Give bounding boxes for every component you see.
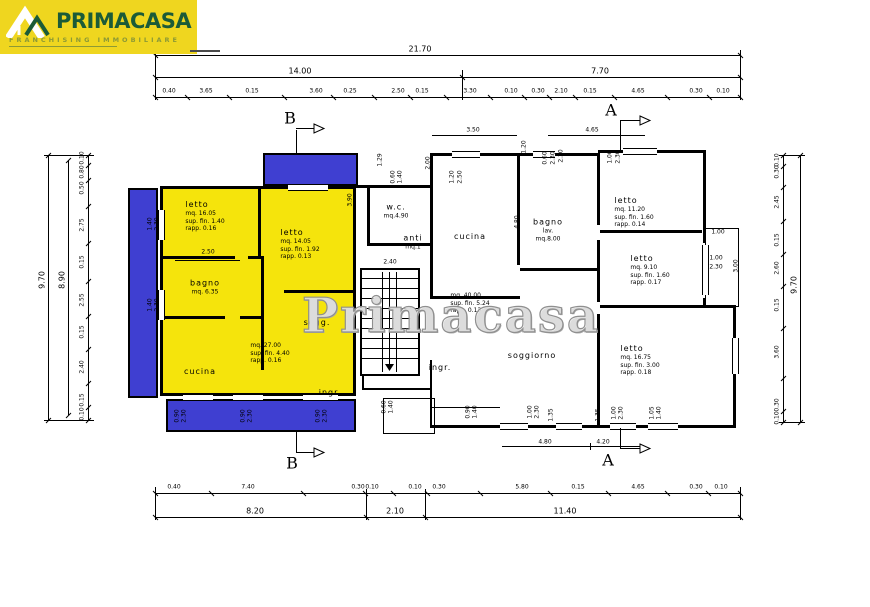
wall xyxy=(430,153,433,299)
dim-label: 1.29 xyxy=(377,153,384,166)
dim-label: 0.90 xyxy=(174,409,181,422)
section-line-a xyxy=(620,448,640,449)
dim-bottom-groups-label: 8.20 xyxy=(246,507,264,516)
dim-left-details-label: 0.10 xyxy=(79,151,86,164)
dim-label: 2.00 xyxy=(425,156,432,169)
window xyxy=(732,338,739,374)
dim-label: 4.65 xyxy=(585,127,598,134)
room-ingr-left-line-0: ingr. xyxy=(319,388,341,398)
dim-left-details-line xyxy=(88,155,89,420)
dim-right-details-label: 2.60 xyxy=(774,261,781,274)
room-letto-2: lettomq. 14.05sup. fin. 1.92rapp. 0.13 xyxy=(280,228,319,261)
dim-label: 4.80 xyxy=(538,439,551,446)
room-letto-r3-line-0: letto xyxy=(620,344,659,354)
dim-right-details-label: 0.15 xyxy=(774,233,781,246)
inline-dim-line xyxy=(432,135,517,136)
dim-label: 0.60 xyxy=(381,400,388,413)
inline-dim-line xyxy=(548,135,645,136)
dim-left-details-label: 0.80 xyxy=(79,165,86,178)
dim-label: 2.30 xyxy=(154,217,161,230)
room-wc-line-1: mq.4.90 xyxy=(384,212,409,220)
section-arrow-b-bottom xyxy=(313,447,326,458)
wall xyxy=(248,256,261,259)
dim-label: 2.30 xyxy=(181,409,188,422)
dim-bottom-details-label: 7.40 xyxy=(241,484,254,491)
section-line-b xyxy=(296,130,297,153)
dim-left-inner-label: 8.90 xyxy=(58,271,67,289)
stair-wall xyxy=(360,268,420,270)
dim-left-overall-label: 9.70 xyxy=(38,271,47,289)
dim-label: 0.60 xyxy=(542,151,549,164)
dim-right-details-label: 0.15 xyxy=(774,298,781,311)
room-letto-2-line-2: sup. fin. 1.92 xyxy=(280,245,319,253)
room-cucina-center: cucina xyxy=(454,232,486,242)
dim-label: 2.30 xyxy=(709,264,722,271)
dim-label: 4.20 xyxy=(596,439,609,446)
dim-top-details-label: 4.65 xyxy=(631,88,644,95)
logo-rule xyxy=(9,46,117,47)
dim-label: 1.20 xyxy=(449,170,456,183)
room-letto-r1-line-0: letto xyxy=(614,196,653,206)
window xyxy=(500,423,528,430)
section-line-b xyxy=(296,128,314,129)
room-letto-1-line-2: sup. fin. 1.40 xyxy=(185,217,224,225)
house-icon xyxy=(6,4,56,38)
balcony-top xyxy=(263,153,358,186)
section-letter-a-bottom: A xyxy=(602,451,614,470)
room-letto-1-line-3: rapp. 0.16 xyxy=(185,225,224,233)
dim-label: 3.50 xyxy=(466,127,479,134)
window xyxy=(556,423,582,430)
stair-tread xyxy=(362,358,418,359)
primacasa-logo: PRIMACASA FRANCHISING IMMOBILIARE xyxy=(0,0,197,54)
wall xyxy=(362,376,364,388)
room-letto-r2-line-1: mq. 9.10 xyxy=(630,264,669,272)
dim-label: 2.30 xyxy=(618,406,625,419)
dim-left-details-label: 2.55 xyxy=(79,293,86,306)
window xyxy=(233,394,263,401)
dim-label: 1.40 xyxy=(147,217,154,230)
dim-left-overall-line xyxy=(48,155,49,420)
dim-top-groups-label: 7.70 xyxy=(591,67,609,76)
room-soggiorno-line-0: soggiorno xyxy=(508,351,556,361)
wall xyxy=(517,156,520,265)
window xyxy=(183,394,213,401)
wall xyxy=(261,256,264,319)
room-letto-2-line-3: rapp. 0.13 xyxy=(280,253,319,261)
dim-label: 1.35 xyxy=(548,408,555,421)
room-letto-1-line-0: letto xyxy=(185,200,224,210)
wall xyxy=(520,268,600,271)
dim-bottom-details-label: 5.80 xyxy=(515,484,528,491)
dim-right-details-label: 0.10 xyxy=(774,411,781,424)
dim-left-details-label: 2.75 xyxy=(79,218,86,231)
dim-right-details-label: 2.45 xyxy=(774,195,781,208)
wall xyxy=(703,150,706,243)
dim-top-overall-line xyxy=(155,55,740,56)
window xyxy=(452,151,480,158)
room-letto-r3-line-2: sup. fin. 3.00 xyxy=(620,361,659,369)
section-arrow-a-top xyxy=(639,115,652,126)
dim-bottom-details-label: 0.10 xyxy=(714,484,727,491)
room-letto-r3-line-3: rapp. 0.18 xyxy=(620,369,659,377)
left-apartment-stats-line-0: mq. 27.00 xyxy=(250,342,289,350)
dim-top-details-label: 0.30 xyxy=(689,88,702,95)
inline-dim-line xyxy=(175,260,240,261)
room-bagno-lav-line-1: lav. xyxy=(533,228,563,236)
dim-label: 0.90 xyxy=(240,409,247,422)
stair-tread xyxy=(362,278,418,279)
wall xyxy=(600,230,702,233)
room-letto-r2-line-2: sup. fin. 1.60 xyxy=(630,271,669,279)
room-soggiorno: soggiorno xyxy=(508,351,556,361)
dim-label: 1.05 xyxy=(649,406,656,419)
section-line-a xyxy=(620,120,621,153)
dim-label: 2.30 xyxy=(322,409,329,422)
dim-label: 2.40 xyxy=(383,259,396,266)
wall xyxy=(163,316,225,319)
section-line-a xyxy=(620,428,621,448)
logo-brand-text: PRIMACASA xyxy=(56,9,191,33)
wall xyxy=(367,185,370,245)
room-wc-line-0: w.c. xyxy=(384,202,409,212)
dim-top-details-label: 0.10 xyxy=(504,88,517,95)
dim-top-details-label: 0.15 xyxy=(245,88,258,95)
dim-top-details-label: 0.15 xyxy=(415,88,428,95)
dim-left-details-label: 0.15 xyxy=(79,325,86,338)
dim-label: 1.40 xyxy=(656,406,663,419)
stair-tread xyxy=(362,348,418,349)
room-bagno-lav-line-0: bagno xyxy=(533,218,563,228)
room-letto-r1: lettomq. 11.20sup. fin. 1.60rapp. 0.14 xyxy=(614,196,653,229)
dim-label: 1.00 xyxy=(611,406,618,419)
inline-dim-line xyxy=(590,443,591,450)
dim-left-details-label: 0.50 xyxy=(79,181,86,194)
dim-bottom-details-label: 0.10 xyxy=(365,484,378,491)
logo-separator-line xyxy=(190,50,220,52)
room-letto-r1-line-1: mq. 11.20 xyxy=(614,206,653,214)
dim-top-details-label: 2.10 xyxy=(554,88,567,95)
dim-top-details-label: 3.65 xyxy=(199,88,212,95)
dim-tick xyxy=(66,412,72,418)
dim-label: 3.90 xyxy=(347,193,354,206)
dim-right-details-line xyxy=(783,155,784,422)
dim-label: 1.20 xyxy=(521,140,528,153)
room-anti: antimq.1 xyxy=(403,233,422,251)
room-letto-2-line-0: letto xyxy=(280,228,319,238)
dim-label: 2.30 xyxy=(558,149,565,162)
dim-top-details-label: 0.25 xyxy=(343,88,356,95)
window xyxy=(610,423,636,430)
left-apartment-stats-line-2: rapp. 0.16 xyxy=(250,357,289,365)
dim-label: 2.30 xyxy=(550,151,557,164)
dim-top-overall-label: 21.70 xyxy=(409,45,432,54)
section-letter-a-top: A xyxy=(605,101,617,120)
section-arrow-a-bottom xyxy=(639,443,652,454)
dim-right-details-label: 0.30 xyxy=(774,398,781,411)
room-ingr-center: ingr. xyxy=(429,363,451,373)
dim-label: 0.90 xyxy=(465,405,472,418)
dim-label: 0.60 xyxy=(390,170,397,183)
room-letto-r2-line-0: letto xyxy=(630,254,669,264)
dim-top-details-label: 3.30 xyxy=(463,88,476,95)
dim-left-details-label: 0.15 xyxy=(79,393,86,406)
dim-bottom-details-label: 0.15 xyxy=(571,484,584,491)
wall xyxy=(362,388,432,390)
room-letto-r3: lettomq. 16.75sup. fin. 3.00rapp. 0.18 xyxy=(620,344,659,377)
dim-bottom-details-label: 0.30 xyxy=(689,484,702,491)
dim-bottom-groups-label: 11.40 xyxy=(554,507,577,516)
stair-direction-arrow xyxy=(385,364,394,371)
ext-line xyxy=(462,70,463,100)
dim-right-overall-label: 9.70 xyxy=(790,276,799,294)
room-cucina-center-line-0: cucina xyxy=(454,232,486,242)
dim-bottom-details-label: 0.30 xyxy=(351,484,364,491)
room-letto-1: lettomq. 16.05sup. fin. 1.40rapp. 0.16 xyxy=(185,200,224,233)
dim-right-details-label: 0.30 xyxy=(774,165,781,178)
dim-left-details-label: 0.15 xyxy=(79,255,86,268)
room-bagno-left-line-0: bagno xyxy=(190,278,220,288)
wall xyxy=(163,256,235,259)
dim-label: 1.40 xyxy=(147,298,154,311)
watermark-text: Primacasa xyxy=(302,288,600,344)
dim-label: 0.90 xyxy=(315,409,322,422)
room-letto-2-line-1: mq. 14.05 xyxy=(280,238,319,246)
dim-label: 1.35 xyxy=(595,408,602,421)
dim-bottom-details-label: 4.65 xyxy=(631,484,644,491)
dim-label: 2.30 xyxy=(154,298,161,311)
dim-left-details-label: 2.40 xyxy=(79,360,86,373)
room-letto-1-line-1: mq. 16.05 xyxy=(185,210,224,218)
window xyxy=(623,148,657,155)
room-bagno-left-line-1: mq. 6.35 xyxy=(190,288,220,296)
dim-label: 2.50 xyxy=(457,170,464,183)
dim-bottom-groups-line xyxy=(155,517,740,518)
room-bagno-lav: bagnolav.mq.8.00 xyxy=(533,218,563,243)
room-cucina-left: cucina xyxy=(184,367,216,377)
dim-label: 1.00 xyxy=(711,229,724,236)
dim-bottom-groups-label: 2.10 xyxy=(386,507,404,516)
room-letto-r1-line-3: rapp. 0.14 xyxy=(614,221,653,229)
dim-bottom-details-line xyxy=(155,493,740,494)
room-ingr-left: ingr. xyxy=(319,388,341,398)
dim-label: 1.40 xyxy=(472,405,479,418)
dim-label: 2.30 xyxy=(615,150,622,163)
wall xyxy=(430,425,736,428)
dim-bottom-details-label: 0.30 xyxy=(432,484,445,491)
wall xyxy=(597,153,600,225)
section-line-b xyxy=(296,452,314,453)
dim-label: 1.40 xyxy=(388,400,395,413)
dim-left-details-label: 0.10 xyxy=(79,407,86,420)
dim-right-overall-line xyxy=(800,155,801,422)
dim-label: 1.40 xyxy=(397,170,404,183)
dim-top-groups-line xyxy=(155,77,740,78)
dim-label: 2.30 xyxy=(534,405,541,418)
room-ingr-center-line-0: ingr. xyxy=(429,363,451,373)
section-line-a xyxy=(620,120,640,121)
dim-label: 3.00 xyxy=(733,259,740,272)
room-cucina-left-line-0: cucina xyxy=(184,367,216,377)
section-arrow-b-top xyxy=(313,123,326,134)
section-line-b xyxy=(296,430,297,452)
left-apartment-stats-line-1: sup. fin. 4.40 xyxy=(250,349,289,357)
room-anti-line-1: mq.1 xyxy=(403,243,422,251)
window xyxy=(702,245,709,295)
dim-label: 1.00 xyxy=(527,405,534,418)
wall xyxy=(367,243,433,246)
dim-label: 4.80 xyxy=(514,215,521,228)
dim-label: 2.50 xyxy=(201,249,214,256)
section-letter-b-bottom: B xyxy=(286,454,298,473)
dim-top-details-label: 2.50 xyxy=(391,88,404,95)
dim-label: 1.00 xyxy=(607,150,614,163)
room-bagno-left: bagnomq. 6.35 xyxy=(190,278,220,296)
room-letto-r3-line-1: mq. 16.75 xyxy=(620,354,659,362)
room-anti-line-0: anti xyxy=(403,233,422,243)
room-bagno-lav-line-2: mq.8.00 xyxy=(533,235,563,243)
dim-top-details-label: 0.15 xyxy=(583,88,596,95)
room-wc: w.c.mq.4.90 xyxy=(384,202,409,220)
floor-plan-page: PRIMACASA FRANCHISING IMMOBILIARE Primac… xyxy=(0,0,870,607)
dim-top-details-label: 0.40 xyxy=(162,88,175,95)
section-letter-b-top: B xyxy=(284,109,296,128)
dim-label: 1.00 xyxy=(709,255,722,262)
wall xyxy=(240,316,261,319)
dim-left-inner-line xyxy=(68,160,69,415)
dim-right-details-label: 3.60 xyxy=(774,345,781,358)
stair-wall xyxy=(360,374,420,376)
wall xyxy=(258,189,261,259)
dim-top-details-label: 0.10 xyxy=(716,88,729,95)
wall xyxy=(600,305,736,308)
dim-bottom-details-label: 0.10 xyxy=(408,484,421,491)
dim-label: 2.30 xyxy=(247,409,254,422)
dim-top-groups-label: 14.00 xyxy=(289,67,312,76)
room-letto-r1-line-2: sup. fin. 1.60 xyxy=(614,213,653,221)
window xyxy=(648,423,678,430)
dim-top-details-label: 3.60 xyxy=(309,88,322,95)
inline-dim-line xyxy=(502,446,645,447)
room-letto-r2-line-3: rapp. 0.17 xyxy=(630,279,669,287)
dim-top-details-label: 0.30 xyxy=(531,88,544,95)
room-letto-r2: lettomq. 9.10sup. fin. 1.60rapp. 0.17 xyxy=(630,254,669,287)
left-apartment-stats: mq. 27.00sup. fin. 4.40rapp. 0.16 xyxy=(250,342,289,365)
dim-bottom-details-label: 0.40 xyxy=(167,484,180,491)
window xyxy=(288,184,328,191)
